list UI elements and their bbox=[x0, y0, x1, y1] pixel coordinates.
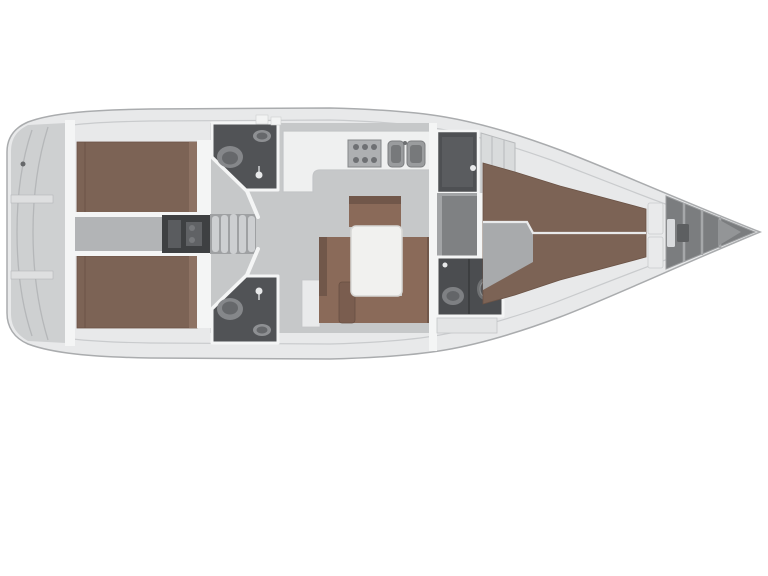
aft-cabin-port bbox=[77, 140, 211, 214]
forward-corridor-wall bbox=[477, 193, 483, 258]
saloon-bench-backrest bbox=[349, 196, 401, 204]
toilet-port-bowl bbox=[222, 152, 238, 165]
forward-head-cabinet bbox=[437, 318, 497, 333]
forward-corridor bbox=[437, 193, 483, 258]
berth-step-lower bbox=[648, 237, 663, 268]
yacht-floorplan: Sailing yacht interior layout floor plan… bbox=[0, 0, 768, 576]
stern-bulkhead-wall bbox=[65, 120, 75, 346]
companionway-stairs bbox=[210, 214, 256, 254]
wet-locker-inner bbox=[442, 137, 473, 187]
forward-corridor-mat bbox=[442, 196, 478, 256]
aft-berth-port bbox=[77, 142, 197, 214]
stair-tread-5 bbox=[248, 216, 255, 252]
engine-detail-dot1 bbox=[189, 225, 195, 231]
burner-6 bbox=[371, 157, 377, 163]
stair-tread-1 bbox=[212, 216, 219, 252]
sink-starboard-basin bbox=[257, 327, 268, 334]
aft-cabin-starboard-fwd-wall bbox=[197, 254, 211, 328]
stern-fitting-dot bbox=[21, 162, 26, 167]
saloon-table bbox=[351, 226, 402, 296]
galley-sink-right-basin bbox=[410, 145, 422, 163]
engine-detail-dot2 bbox=[189, 237, 195, 243]
shower-knob-port bbox=[256, 172, 263, 179]
stair-tread-4 bbox=[239, 215, 246, 253]
engine-detail-2 bbox=[186, 222, 202, 246]
burner-2 bbox=[362, 144, 368, 150]
engine-compartment bbox=[162, 215, 210, 253]
shower-knob-starboard bbox=[256, 288, 263, 295]
aft-cabin-starboard bbox=[77, 254, 211, 328]
burner-3 bbox=[371, 144, 377, 150]
saloon-cabinet-white bbox=[302, 280, 320, 327]
toilet-starboard-bowl bbox=[222, 302, 238, 315]
aft-berth-port-highlight bbox=[189, 142, 197, 214]
transom-step-upper bbox=[11, 195, 53, 203]
galley-faucet bbox=[403, 141, 407, 145]
stair-tread-3 bbox=[230, 214, 237, 254]
aft-berth-starboard bbox=[77, 256, 197, 328]
stern-platform bbox=[11, 120, 75, 346]
stair-tread-2 bbox=[221, 215, 228, 253]
sink-port-basin bbox=[257, 133, 268, 140]
deck-box-2 bbox=[271, 117, 281, 125]
toilet-forward-bowl bbox=[447, 291, 460, 301]
aft-cabin-port-fwd-wall bbox=[197, 140, 211, 214]
burner-5 bbox=[362, 157, 368, 163]
transom-step-lower bbox=[11, 271, 53, 279]
galley-sink-left-basin bbox=[391, 145, 401, 163]
floorplan-svg: Sailing yacht interior layout floor plan… bbox=[0, 0, 768, 576]
stern-platform-floor bbox=[11, 123, 66, 343]
windlass-base bbox=[667, 219, 675, 247]
wet-locker bbox=[437, 131, 478, 193]
corridor-floor bbox=[75, 217, 163, 251]
wet-locker-knob bbox=[470, 165, 476, 171]
forward-head-knob bbox=[443, 263, 448, 268]
anchor-locker bbox=[666, 196, 755, 269]
aft-berth-starboard-highlight bbox=[189, 256, 197, 328]
burner-4 bbox=[353, 157, 359, 163]
berth-step-upper bbox=[648, 203, 663, 234]
engine-detail-1 bbox=[168, 220, 181, 248]
burner-1 bbox=[353, 144, 359, 150]
deck-box-1 bbox=[256, 115, 268, 124]
windlass-fitting bbox=[677, 224, 689, 242]
